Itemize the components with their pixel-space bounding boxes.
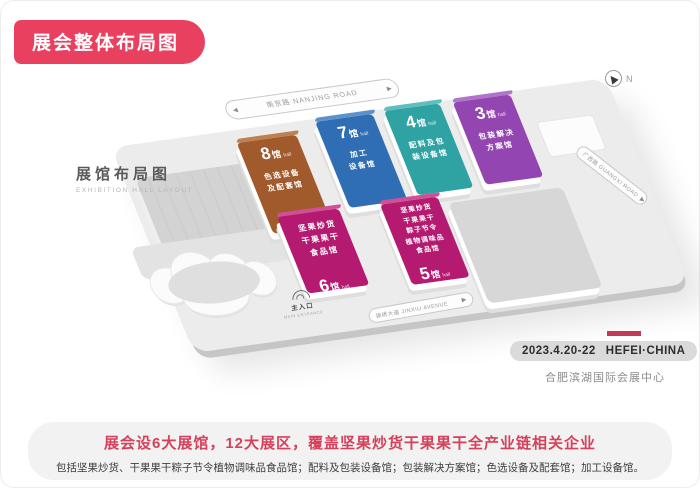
layout-heading-cn: 展馆布局图 bbox=[76, 163, 193, 184]
hall-number: 8馆hall bbox=[242, 134, 308, 166]
event-city: HEFEI·CHINA bbox=[606, 345, 686, 357]
compass-icon bbox=[605, 70, 622, 87]
hall-name: 坚果炒货 干果果干 粽子节令 植物调味品 食品馆 bbox=[386, 201, 458, 260]
hall-name: 色选设备 及配套馆 bbox=[251, 165, 317, 197]
footer-panel: 展会设6大展馆，12大展区，覆盖坚果炒货干果果干全产业链相关企业 包括坚果炒货、… bbox=[28, 422, 672, 480]
layout-heading-en: EXHIBITION HALL LAYOUT bbox=[76, 187, 193, 194]
hall-name: 坚果炒货 干果果干 食品馆 bbox=[285, 216, 357, 262]
hall-number-sub: hall bbox=[428, 120, 437, 127]
layout-heading: 展馆布局图 EXHIBITION HALL LAYOUT bbox=[76, 163, 193, 194]
arrow-right-icon: ▶ bbox=[385, 85, 392, 92]
hall-number: 4馆hall bbox=[389, 103, 451, 134]
hall-number: 3馆hall bbox=[457, 94, 521, 125]
gray-hall-block bbox=[448, 187, 602, 303]
event-venue: 合肥滨湖国际会展中心 bbox=[540, 369, 670, 385]
compass-label: N bbox=[626, 74, 633, 84]
hall-number-unit: 馆 bbox=[416, 118, 428, 129]
event-date: 2023.4.20-22 bbox=[522, 345, 596, 357]
hall-number-sub: hall bbox=[497, 111, 506, 118]
accent-bar bbox=[607, 331, 641, 336]
hall-name: 配料及包 装设备馆 bbox=[398, 134, 460, 165]
hall-number-unit: 馆 bbox=[485, 109, 497, 120]
hall-number-unit: 馆 bbox=[271, 149, 283, 160]
hall-number-sub: hall bbox=[341, 284, 350, 291]
compass: N bbox=[605, 70, 633, 87]
white-service-block bbox=[536, 114, 607, 157]
hall-number-unit: 馆 bbox=[348, 128, 360, 139]
event-date-pill: 2023.4.20-22 HEFEI·CHINA bbox=[510, 341, 697, 361]
compass-needle-icon bbox=[607, 73, 618, 84]
arrow-right-icon: ▶ bbox=[461, 296, 467, 304]
hall-number-sub: hall bbox=[360, 131, 369, 138]
hall-number: 5馆hall bbox=[403, 260, 466, 286]
arrow-left-icon: ◀ bbox=[232, 106, 239, 113]
footer-headline: 展会设6大展馆，12大展区，覆盖坚果炒货干果果干全产业链相关企业 bbox=[28, 432, 672, 453]
hall-number-unit: 馆 bbox=[329, 281, 341, 292]
hall-name: 包装解决 方案馆 bbox=[466, 125, 530, 156]
hall-number-sub: hall bbox=[283, 152, 292, 159]
page-title: 展会整体布局图 bbox=[14, 20, 205, 64]
hall-number: 7馆hall bbox=[320, 113, 384, 144]
hall-number-unit: 馆 bbox=[430, 269, 442, 280]
hall-number-sub: hall bbox=[442, 272, 451, 279]
hall-6: 坚果炒货 干果果干 食品馆 6馆hall bbox=[277, 208, 369, 293]
road-name: 南京路 NANJING ROAD bbox=[265, 88, 360, 110]
footer-description: 包括坚果炒货、干果果干粽子节令植物调味品食品馆；配料及包装设备馆；包装解决方案馆… bbox=[28, 460, 672, 475]
hall-name: 加工 设备馆 bbox=[329, 144, 393, 175]
entrance-arch-icon bbox=[291, 289, 310, 300]
